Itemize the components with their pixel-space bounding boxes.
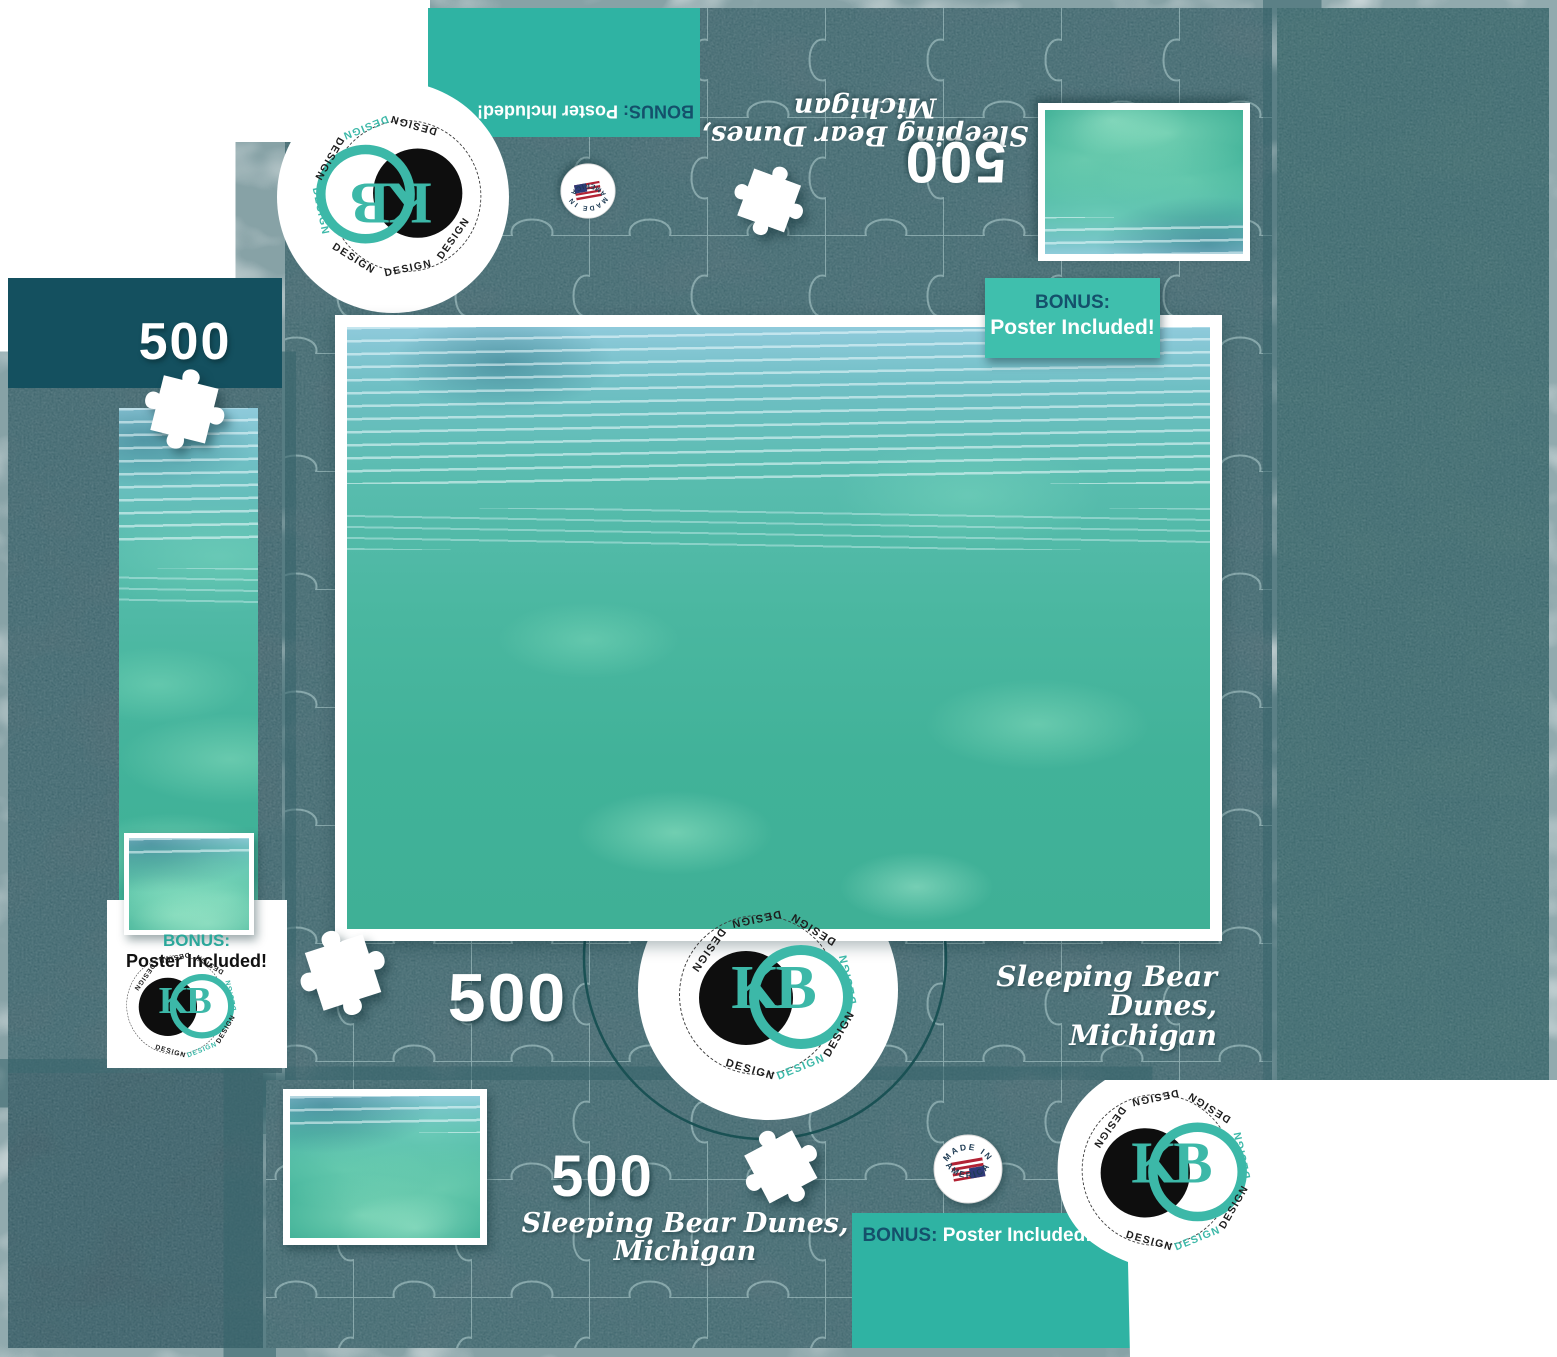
water-streaks	[129, 838, 249, 862]
top-bonus-line: BONUS: Poster Included!	[468, 100, 703, 123]
bonus-label: BONUS:	[862, 1225, 937, 1246]
puzzle-piece-icon	[290, 918, 402, 1035]
puzzle-piece-icon	[722, 152, 814, 249]
water-streaks	[1045, 217, 1243, 254]
kb-design-logo: KB DESIGN DESIGN DESIGN DESIGN DESIGN DE…	[687, 915, 857, 1075]
bottom-piece-count: 500	[520, 1148, 685, 1206]
main-puzzle-image-frame	[335, 315, 1222, 941]
logo-initials: KB	[1093, 1134, 1247, 1193]
thumbnail-image	[1045, 110, 1243, 254]
panel-bottom-left-texture	[8, 1073, 263, 1348]
puzzle-box-dieline: BONUS: Poster Included! BONUS: Poster In…	[0, 0, 1557, 1357]
bottom-thumbnail	[283, 1089, 487, 1245]
water-streaks	[347, 508, 1210, 550]
bonus-text: Poster Included!	[477, 102, 618, 122]
kb-design-logo: KB DESIGN DESIGN DESIGN DESIGN DESIGN DE…	[1089, 1094, 1251, 1246]
front-title-line1: Sleeping Bear Dunes,	[927, 962, 1217, 1021]
left-thumbnail	[124, 833, 254, 935]
bottom-bonus-line: BONUS: Poster Included!	[852, 1224, 1102, 1248]
thumbnail-image	[290, 1096, 480, 1238]
main-puzzle-image	[347, 327, 1210, 929]
kb-design-logo: KB DESIGN DESIGN DESIGN DESIGN DESIGN DE…	[312, 120, 474, 272]
bonus-text: Poster Included!	[943, 1225, 1092, 1246]
bonus-label: BONUS:	[985, 292, 1160, 314]
water-streaks	[119, 568, 258, 605]
front-title: Sleeping Bear Dunes, Michigan	[927, 962, 1217, 1050]
front-piece-count: 500	[420, 964, 595, 1032]
bonus-text: Poster Included!	[985, 316, 1160, 340]
kb-design-logo: KB DESIGN DESIGN DESIGN DESIGN DESIGN DE…	[131, 955, 236, 1054]
logo-initials: KB	[316, 173, 470, 232]
top-thumbnail	[1038, 103, 1250, 261]
thumbnail-image	[129, 838, 249, 930]
logo-initials: KB	[134, 981, 234, 1019]
left-bonus-label: BONUS:	[104, 930, 289, 951]
bonus-label: BONUS:	[623, 102, 694, 122]
bonus-badge: BONUS: Poster Included!	[985, 278, 1160, 358]
panel-right-texture	[1277, 8, 1549, 1080]
water-streaks	[290, 1096, 480, 1133]
front-title-line2: Michigan	[927, 1021, 1217, 1050]
top-piece-count: 500	[880, 132, 1030, 190]
made-in-america-badge: MADE IN AMERICA	[560, 158, 616, 219]
puzzle-piece-icon	[728, 1116, 828, 1221]
made-in-america-badge: MADE IN AMERICA	[933, 1134, 1003, 1209]
logo-initials: KB	[691, 957, 853, 1019]
puzzle-piece-icon	[134, 360, 238, 469]
